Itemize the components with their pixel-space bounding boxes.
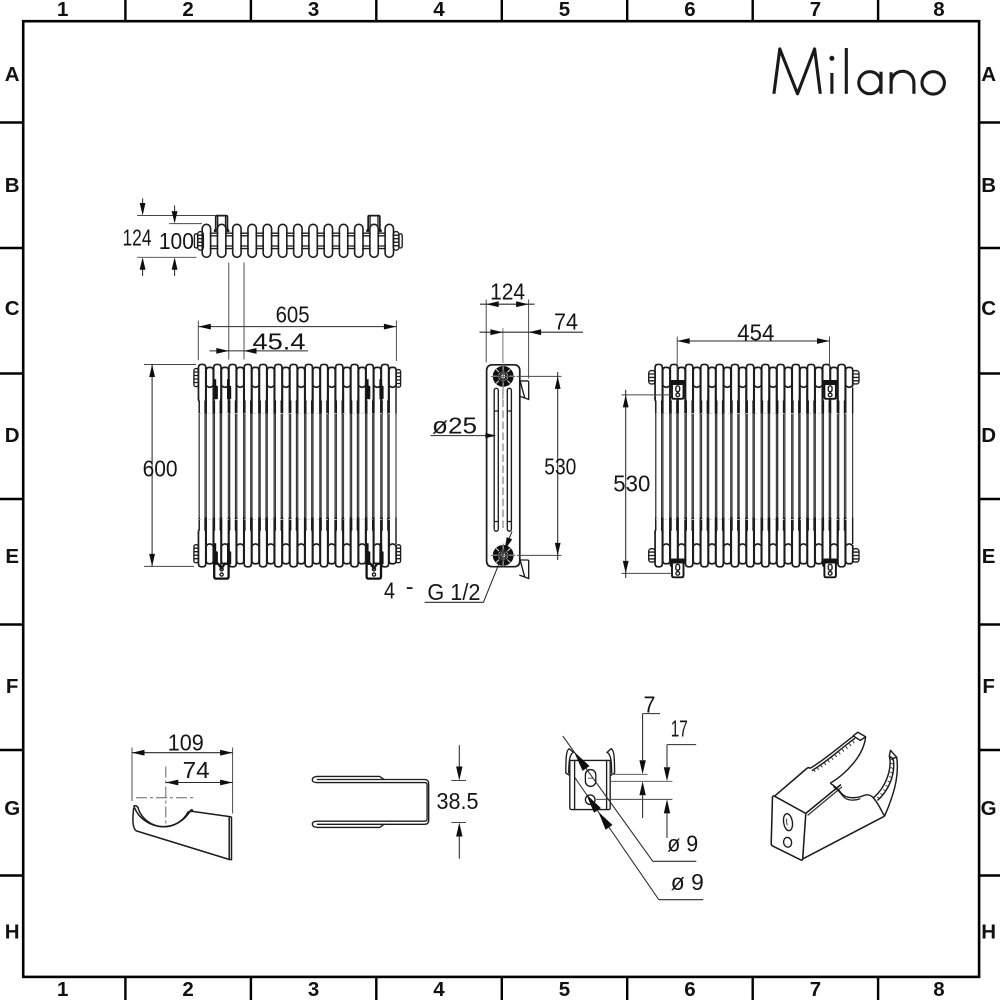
svg-text:7: 7 — [644, 691, 656, 717]
svg-text:H: H — [5, 920, 20, 943]
svg-text:17: 17 — [671, 715, 688, 741]
svg-text:45.4: 45.4 — [253, 329, 306, 355]
svg-text:F: F — [982, 675, 995, 698]
svg-text:3: 3 — [308, 0, 319, 21]
svg-text:605: 605 — [276, 301, 310, 327]
svg-text:C: C — [981, 297, 996, 320]
svg-text:ø 9: ø 9 — [671, 869, 704, 895]
svg-text:109: 109 — [168, 730, 204, 756]
svg-text:530: 530 — [613, 471, 650, 497]
svg-text:B: B — [5, 174, 20, 197]
svg-text:A: A — [5, 63, 20, 86]
svg-text:100: 100 — [159, 228, 194, 254]
svg-text:8: 8 — [933, 0, 944, 21]
svg-text:G 1/2: G 1/2 — [427, 579, 480, 605]
svg-text:7: 7 — [810, 978, 821, 1000]
svg-text:2: 2 — [182, 0, 193, 21]
svg-text:6: 6 — [684, 0, 695, 21]
svg-text:2: 2 — [182, 978, 193, 1000]
svg-text:H: H — [981, 920, 996, 943]
svg-text:1: 1 — [57, 0, 68, 21]
svg-text:4: 4 — [384, 578, 395, 604]
svg-text:ø 9: ø 9 — [667, 831, 698, 857]
svg-text:F: F — [6, 675, 19, 698]
svg-text:600: 600 — [143, 455, 178, 481]
svg-text:E: E — [5, 545, 19, 568]
svg-text:4: 4 — [433, 0, 445, 21]
svg-text:B: B — [981, 174, 996, 197]
svg-text:D: D — [5, 424, 20, 447]
svg-text:38.5: 38.5 — [437, 788, 479, 814]
svg-text:D: D — [981, 424, 996, 447]
svg-text:74: 74 — [554, 309, 578, 335]
svg-text:1: 1 — [57, 978, 68, 1000]
svg-text:4: 4 — [433, 978, 445, 1000]
svg-text:74: 74 — [183, 757, 210, 783]
svg-text:A: A — [981, 63, 996, 86]
svg-text:ø25: ø25 — [432, 413, 477, 439]
svg-text:G: G — [981, 797, 997, 820]
svg-text:7: 7 — [810, 0, 821, 21]
svg-text:G: G — [4, 797, 20, 820]
svg-text:124: 124 — [490, 279, 525, 305]
svg-text:454: 454 — [737, 320, 774, 346]
svg-text:3: 3 — [308, 978, 319, 1000]
svg-text:124: 124 — [123, 224, 152, 250]
svg-text:E: E — [982, 545, 996, 568]
svg-text:530: 530 — [544, 454, 576, 480]
svg-text:5: 5 — [559, 978, 570, 1000]
svg-text:8: 8 — [933, 978, 944, 1000]
svg-text:5: 5 — [559, 0, 570, 21]
svg-text:C: C — [5, 297, 20, 320]
svg-text:6: 6 — [684, 978, 695, 1000]
svg-text:-: - — [406, 574, 414, 600]
